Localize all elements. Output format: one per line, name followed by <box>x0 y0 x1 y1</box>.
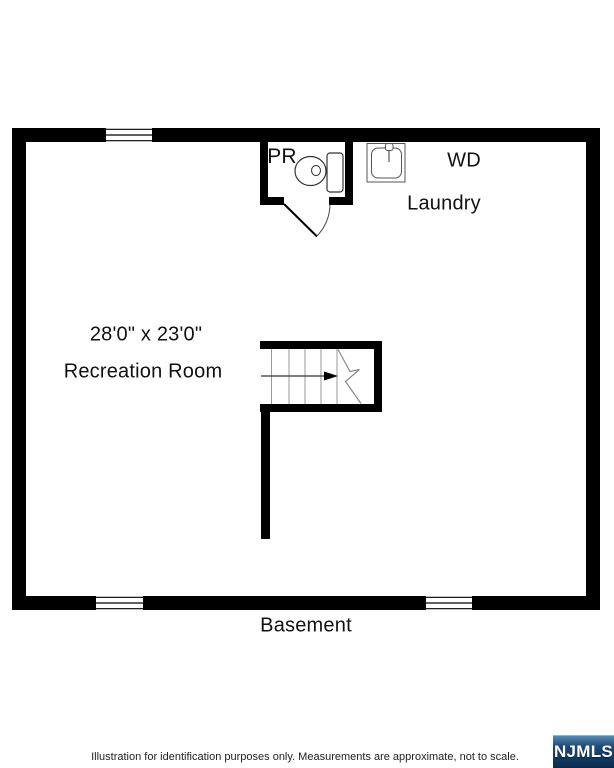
basement-label: Basement <box>260 615 352 638</box>
toilet-tank <box>327 153 343 192</box>
toilet-icon <box>295 153 343 192</box>
door-leaf <box>284 204 317 237</box>
stair-direction-arrow <box>261 372 338 381</box>
stair-wall-lower <box>261 412 270 539</box>
window-bottom-right <box>426 596 472 610</box>
tub-faucet-handle <box>386 144 394 151</box>
room-dimensions-label: 28'0" x 23'0" <box>90 324 202 347</box>
window-bottom-left <box>96 596 143 610</box>
stair-break-line <box>338 350 361 404</box>
floor-plan-drawing <box>0 0 614 768</box>
stair-wall-right <box>374 341 382 412</box>
stair-wall-top <box>260 341 382 349</box>
washer-dryer-label: WD <box>447 150 481 173</box>
window-top <box>106 128 152 142</box>
toilet-bowl <box>295 157 326 186</box>
disclaimer-text: Illustration for identification purposes… <box>91 751 519 763</box>
door-swing-icon <box>284 204 330 237</box>
njmls-logo: NJMLS <box>553 735 614 768</box>
njmls-logo-text: NJMLS <box>554 742 613 762</box>
pr-wall-bottom-right <box>329 197 353 205</box>
wall-right <box>586 128 600 610</box>
pr-wall-right <box>345 142 353 205</box>
arrow-head <box>324 372 338 381</box>
door-arc <box>317 204 331 237</box>
floor-plan-page: PR WD Laundry 28'0" x 23'0" Recreation R… <box>0 0 614 768</box>
stairs <box>260 341 382 539</box>
powder-room-label: PR <box>267 145 297 169</box>
laundry-tub-icon <box>367 144 405 183</box>
recreation-room-label: Recreation Room <box>64 361 223 384</box>
laundry-label: Laundry <box>407 193 481 216</box>
wall-top <box>12 128 600 142</box>
wall-left <box>12 128 26 610</box>
stair-wall-bottom <box>260 404 382 412</box>
pr-wall-bottom-left <box>260 197 284 205</box>
